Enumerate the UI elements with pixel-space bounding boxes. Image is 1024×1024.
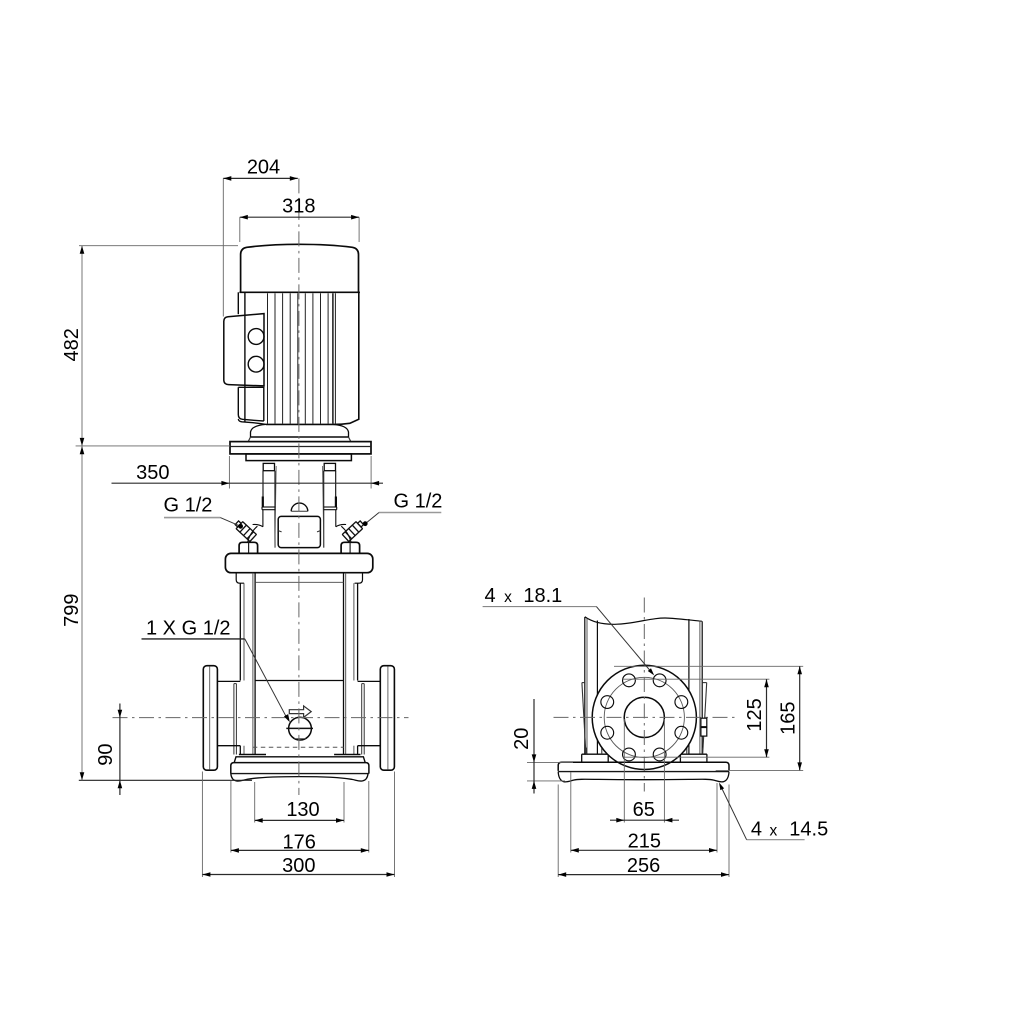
- svg-text:130: 130: [286, 799, 319, 821]
- svg-text:90: 90: [95, 743, 117, 765]
- svg-text:318: 318: [282, 195, 315, 217]
- svg-text:300: 300: [282, 855, 315, 877]
- svg-text:256: 256: [627, 855, 660, 877]
- svg-text:799: 799: [61, 594, 83, 627]
- svg-text:165: 165: [778, 702, 800, 735]
- svg-text:65: 65: [633, 799, 655, 821]
- svg-text:482: 482: [61, 328, 83, 361]
- svg-text:G 1/2: G 1/2: [394, 490, 443, 512]
- svg-text:125: 125: [744, 698, 766, 731]
- svg-text:20: 20: [511, 728, 533, 750]
- svg-text:176: 176: [283, 831, 316, 853]
- svg-text:G 1/2: G 1/2: [164, 495, 213, 517]
- svg-text:1 X G 1/2: 1 X G 1/2: [146, 617, 231, 639]
- svg-text:204: 204: [247, 156, 280, 178]
- svg-text:350: 350: [136, 462, 169, 484]
- svg-text:215: 215: [628, 831, 661, 853]
